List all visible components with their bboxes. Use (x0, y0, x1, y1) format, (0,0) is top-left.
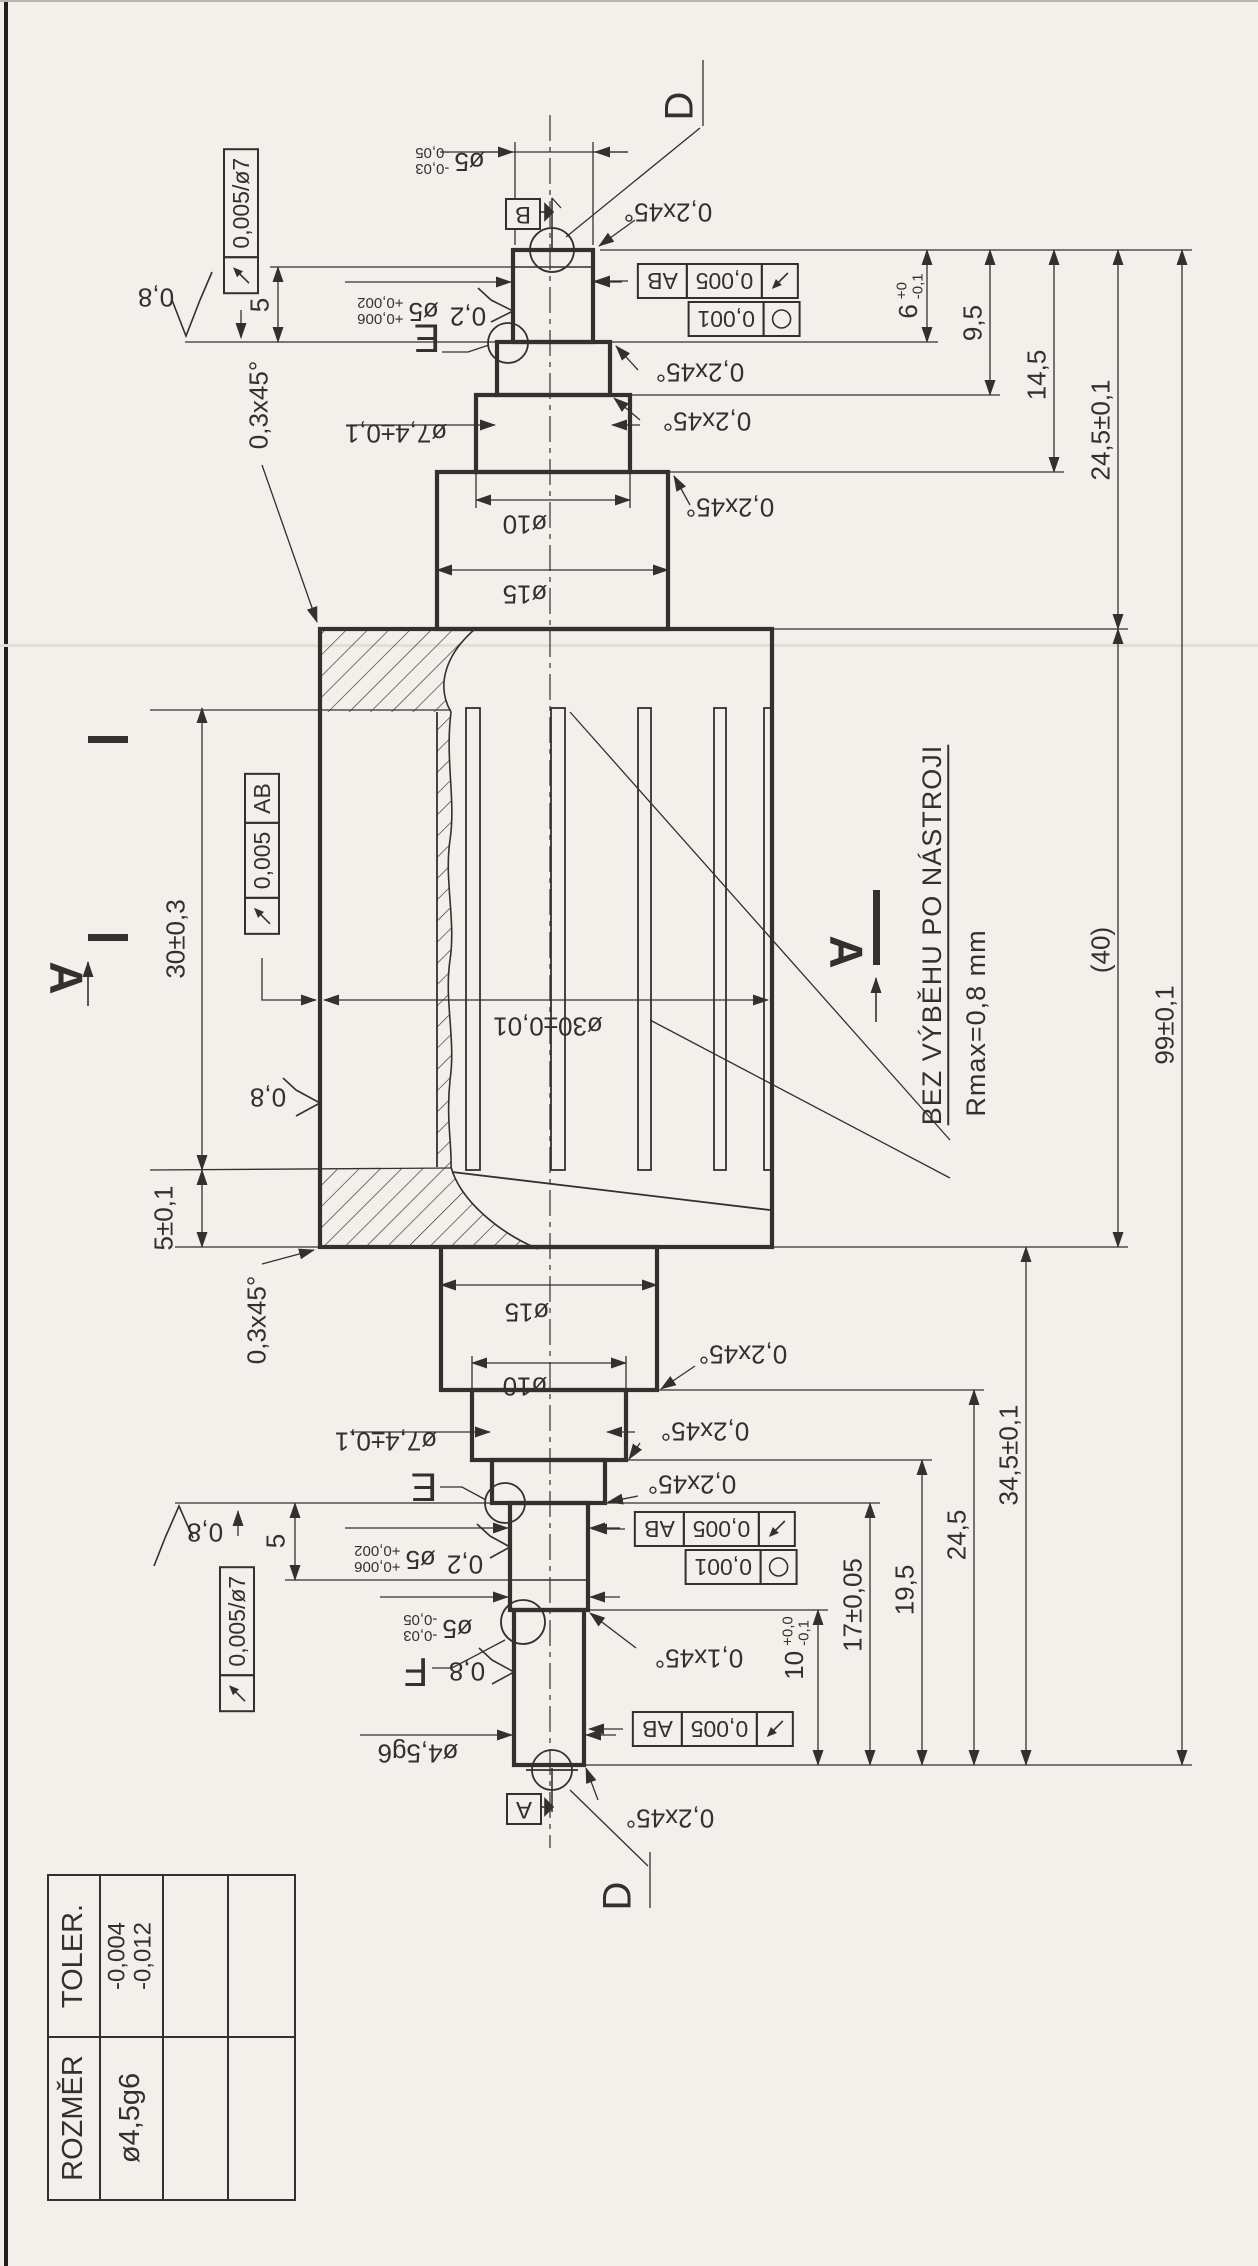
detail-f-label: F (404, 1651, 428, 1692)
runout-tolerance: 0,005/ø7 (219, 1566, 255, 1677)
dim-d5-minus-bottom: ø5-0,03-0,05 (403, 1611, 473, 1643)
chamfer-01: 0,1x45° (655, 1645, 743, 1672)
note-no-tool-runout: BEZ VÝBĚHU PO NÁSTROJI (919, 745, 947, 1126)
table-cell-dimension: ø4,5g6 (116, 2073, 146, 2163)
drawing-sheet: 0,005/ø7 0,005/ø7 0,005 AB 0,005 AB 0,00… (0, 0, 1258, 2266)
dim-l145: 14,5 (1024, 350, 1051, 401)
detail-e-label-top: E (414, 317, 441, 358)
dim-l6: 6+0-0,1 (894, 273, 926, 318)
dim-d5-minus-top: ø5-0,03-0,05 (415, 144, 485, 176)
runout-frame-cylinder: 0,005 AB (244, 773, 280, 933)
dim-d10-bottom: ø10 (503, 1373, 548, 1400)
datum-b-label: B (515, 200, 531, 228)
roughness-02: 0,2 (447, 1551, 483, 1578)
roughness-icon (154, 272, 514, 1684)
runout-frame-journal-bottom: 0,005 AB (634, 1511, 794, 1547)
hatch-top-breakout (322, 629, 475, 712)
scan-edge-artifact (4, 0, 8, 2266)
runout-icon (756, 1711, 794, 1747)
circularity-icon (763, 301, 801, 337)
detail-d-label-bottom: D (598, 1882, 639, 1911)
chamfer-03-top: 0,3x45° (246, 361, 273, 449)
dim-l10: 10+0,0-0,1 (780, 1616, 812, 1680)
runout-icon (758, 1511, 796, 1547)
circularity-frame-top: 0,001 (687, 301, 798, 337)
chamfer-02-top-end: 0,2x45° (624, 199, 712, 226)
chamfer-02: 0,2x45° (656, 359, 744, 386)
dim-d30: ø30±0,01 (493, 1013, 603, 1040)
dim-l40: (40) (1088, 927, 1115, 973)
dim-l245-tol: 24,5±0,1 (1088, 379, 1115, 480)
runout-datums: AB (244, 773, 280, 824)
note-rmax: Rmax=0,8 mm (963, 929, 991, 1116)
chamfer-02: 0,2x45° (663, 408, 751, 435)
runout-tolerance: 0,005/ø7 (223, 148, 259, 259)
dim-d15-top: ø15 (503, 581, 548, 608)
chamfer-02: 0,2x45° (661, 1418, 749, 1445)
dim-d10-top: ø10 (503, 511, 548, 538)
roughness-08: 0,8 (250, 1084, 286, 1111)
runout-icon (761, 263, 799, 299)
section-a-label-right: A (823, 935, 870, 968)
circularity-frame-bottom: 0,001 (684, 1549, 795, 1585)
dim-d15-bottom: ø15 (505, 1299, 550, 1326)
datum-b-box: B (505, 198, 541, 230)
chamfer-02: 0,2x45° (648, 1471, 736, 1498)
dim-l17: 17±0,05 (840, 1558, 867, 1652)
detail-e-label-bottom: E (411, 1466, 438, 1507)
detail-d-label-top: D (660, 92, 701, 121)
chamfer-02-bottom-end: 0,2x45° (626, 1805, 714, 1832)
dim-l195: 19,5 (892, 1565, 919, 1616)
roughness-08: 0,8 (449, 1658, 485, 1685)
datum-a-box: A (506, 1793, 542, 1825)
dim-l5-bottom: 5 (263, 1534, 290, 1548)
circularity-icon (760, 1549, 798, 1585)
dim-l5-top: 5 (247, 298, 274, 312)
roughness-02: 0,2 (450, 303, 486, 330)
runout-frame-top: 0,005/ø7 (223, 148, 259, 292)
runout-icon (219, 1674, 255, 1712)
runout-frame-bottom: 0,005/ø7 (219, 1566, 255, 1710)
runout-icon (244, 897, 280, 935)
dim-l99: 99±0,1 (1152, 985, 1179, 1064)
runout-tolerance: 0,005 (244, 822, 280, 900)
dim-l30: 30±0,3 (163, 899, 190, 978)
dim-d45g6: ø4,5g6 (378, 1740, 459, 1767)
shaft-drawing-geometry (0, 0, 1258, 2266)
runout-frame-journal-top: 0,005 AB (637, 263, 797, 299)
chamfer-03-bottom: 0,3x45° (244, 1276, 271, 1364)
table-cell-tolerance: -0,004-0,012 (105, 1922, 158, 1990)
dim-l245: 24,5 (944, 1510, 971, 1561)
roughness-08: 0,8 (138, 284, 174, 311)
dim-l5-tol: 5±0,1 (151, 1186, 178, 1251)
datum-a-label: A (516, 1795, 532, 1823)
dim-l345: 34,5±0,1 (996, 1404, 1023, 1505)
runout-frame-end: 0,005 AB (632, 1711, 792, 1747)
runout-icon (223, 256, 259, 294)
roughness-08: 0,8 (187, 1519, 223, 1546)
section-a-label-left: A (43, 961, 90, 994)
dim-d5-plus-bottom: ø5+0,006+0,002 (354, 1542, 436, 1574)
dim-d74-bottom: ø7,4±0,1 (335, 1428, 437, 1455)
chamfer-02: 0,2x45° (686, 494, 774, 521)
dim-d74-top: ø7,4±0,1 (345, 420, 447, 447)
dim-l95: 9,5 (960, 305, 987, 341)
chamfer-02: 0,2x45° (699, 1341, 787, 1368)
table-header-toler: TOLER. (59, 1904, 89, 2008)
table-header-rozmer: ROZMĚR (59, 2055, 89, 2181)
